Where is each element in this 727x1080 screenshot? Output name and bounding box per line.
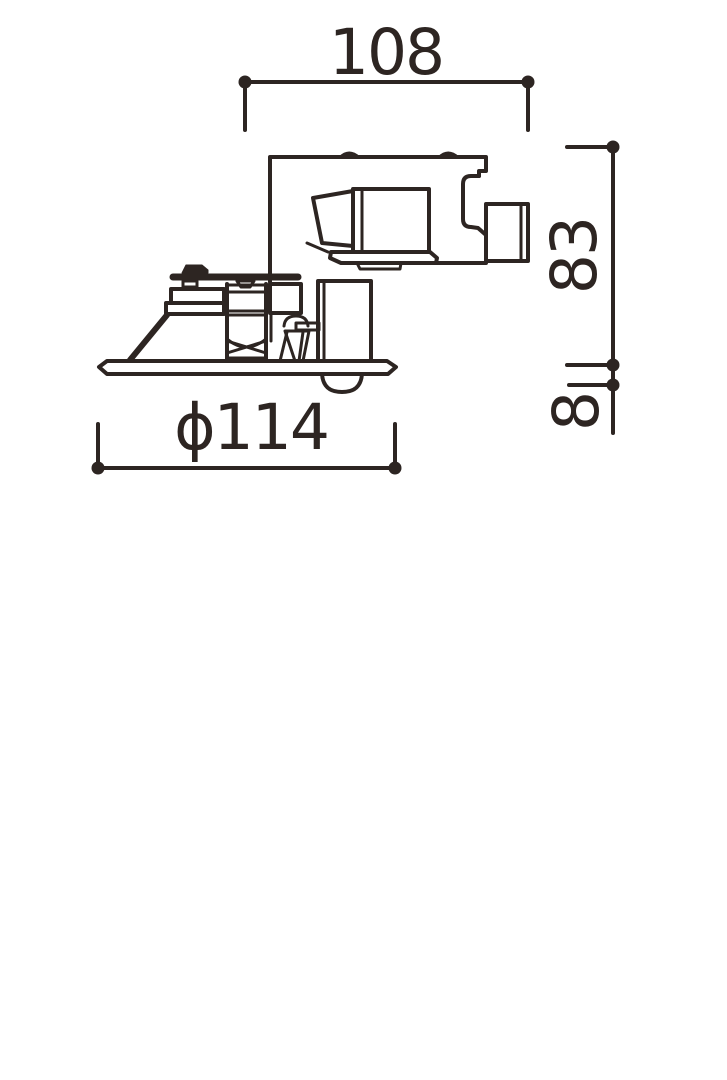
tray-tab <box>357 263 401 269</box>
sensor-bump <box>322 374 362 392</box>
inner-module <box>270 284 301 313</box>
dim-height-dot-top <box>607 141 620 154</box>
dimension-width-top: 108 <box>239 16 535 130</box>
side-block <box>318 281 371 361</box>
downlight-dimension-drawing: 108 83 8 ϕ114 <box>0 0 727 1080</box>
box-side-latch-tab <box>428 176 486 263</box>
dim-diameter-dot-left <box>92 462 105 475</box>
heatsink-step-2 <box>166 303 224 314</box>
dim-diameter-dot-right <box>389 462 402 475</box>
heatsink-step-1 <box>171 289 224 303</box>
terminal-wedge <box>313 191 353 246</box>
lamp-body <box>99 265 396 392</box>
box-top-bump-left <box>339 152 360 157</box>
dimension-flange-right: 8 <box>540 365 620 431</box>
retainer-cup <box>285 331 309 361</box>
cone-slope <box>130 315 167 360</box>
dim-flange-label: 8 <box>540 393 613 431</box>
terminal-body <box>353 189 429 252</box>
terminal-tray <box>330 252 437 263</box>
dim-height-label: 83 <box>538 218 611 294</box>
dimension-height-right: 83 <box>538 141 620 434</box>
dim-diameter-label: ϕ114 <box>174 391 328 464</box>
retainer-leg <box>280 332 287 361</box>
dim-width-label: 108 <box>329 16 443 89</box>
trim-flange <box>99 361 396 374</box>
bracket-foot <box>183 281 197 287</box>
dim-flange-dot <box>607 379 620 392</box>
fixture-drawing <box>99 152 528 392</box>
drawing-canvas: 108 83 8 ϕ114 <box>0 0 727 1080</box>
bracket-clip <box>182 265 208 273</box>
driver-box <box>270 152 528 282</box>
dimension-diameter-bottom: ϕ114 <box>92 391 402 475</box>
box-top-bump-right <box>438 152 459 157</box>
